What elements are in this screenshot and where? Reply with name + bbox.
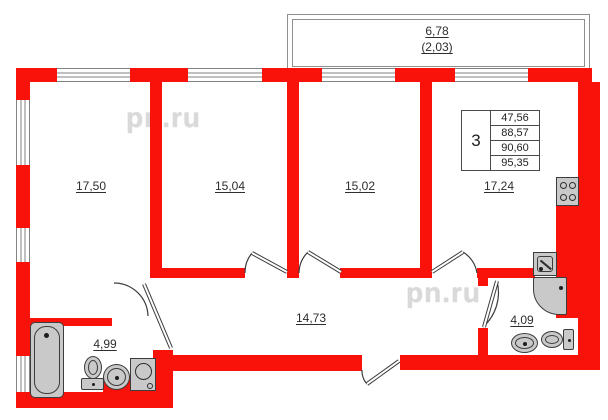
stove-icon bbox=[556, 177, 579, 206]
area-value-cell: 47,56 bbox=[491, 111, 539, 126]
floor-plan: pn.ru pn.ru 6,78 (2,03) bbox=[0, 0, 608, 420]
room-area-label: 15,04 bbox=[200, 179, 260, 193]
wall bbox=[150, 268, 245, 278]
window bbox=[188, 68, 262, 82]
sink-icon bbox=[511, 333, 538, 353]
wall bbox=[420, 82, 432, 278]
window bbox=[57, 68, 130, 82]
shower-icon bbox=[533, 277, 567, 315]
wall bbox=[160, 355, 362, 371]
wall bbox=[16, 262, 30, 356]
watermark-logo: pn.ru bbox=[406, 277, 481, 309]
wall bbox=[578, 82, 600, 370]
wall bbox=[400, 355, 600, 370]
wall bbox=[478, 328, 488, 355]
wall bbox=[528, 68, 592, 82]
toilet-icon bbox=[84, 356, 102, 379]
kitchen-sink-icon bbox=[533, 252, 557, 276]
wall bbox=[262, 68, 322, 82]
wall bbox=[478, 276, 488, 286]
balcony-width-label: (2,03) bbox=[397, 40, 477, 54]
room-area-label: 17,24 bbox=[469, 179, 529, 193]
wall bbox=[287, 82, 299, 278]
wall bbox=[130, 68, 188, 82]
wall bbox=[16, 165, 30, 228]
room-area-label: 14,73 bbox=[281, 311, 341, 325]
room-area-label: 17,50 bbox=[61, 179, 121, 193]
toilet-tank-icon bbox=[81, 378, 104, 390]
wall bbox=[395, 68, 455, 82]
area-value-cell: 90,60 bbox=[491, 141, 539, 156]
watermark-logo: pn.ru bbox=[126, 102, 201, 134]
window bbox=[16, 228, 30, 262]
wall bbox=[16, 82, 30, 100]
room-area-label: 15,02 bbox=[330, 179, 390, 193]
sink-icon bbox=[103, 364, 130, 390]
apartment-info-table: 3 47,56 88,57 90,60 95,35 bbox=[461, 110, 540, 171]
room-area-label: 4,99 bbox=[75, 337, 135, 351]
window bbox=[16, 356, 30, 392]
window bbox=[322, 68, 395, 82]
wall bbox=[16, 68, 57, 82]
wall bbox=[340, 268, 423, 278]
window bbox=[455, 68, 528, 82]
toilet-tank-icon bbox=[563, 329, 574, 350]
bathtub-icon bbox=[30, 322, 64, 398]
area-value-cell: 95,35 bbox=[491, 156, 539, 170]
room-area-label: 4,09 bbox=[492, 313, 552, 327]
washing-machine-icon bbox=[130, 358, 156, 391]
wall bbox=[150, 82, 162, 278]
toilet-icon bbox=[541, 331, 563, 348]
area-value-cell: 88,57 bbox=[491, 126, 539, 141]
balcony-length-label: 6,78 bbox=[397, 24, 477, 38]
room-count-cell: 3 bbox=[462, 111, 491, 170]
window bbox=[16, 100, 30, 165]
